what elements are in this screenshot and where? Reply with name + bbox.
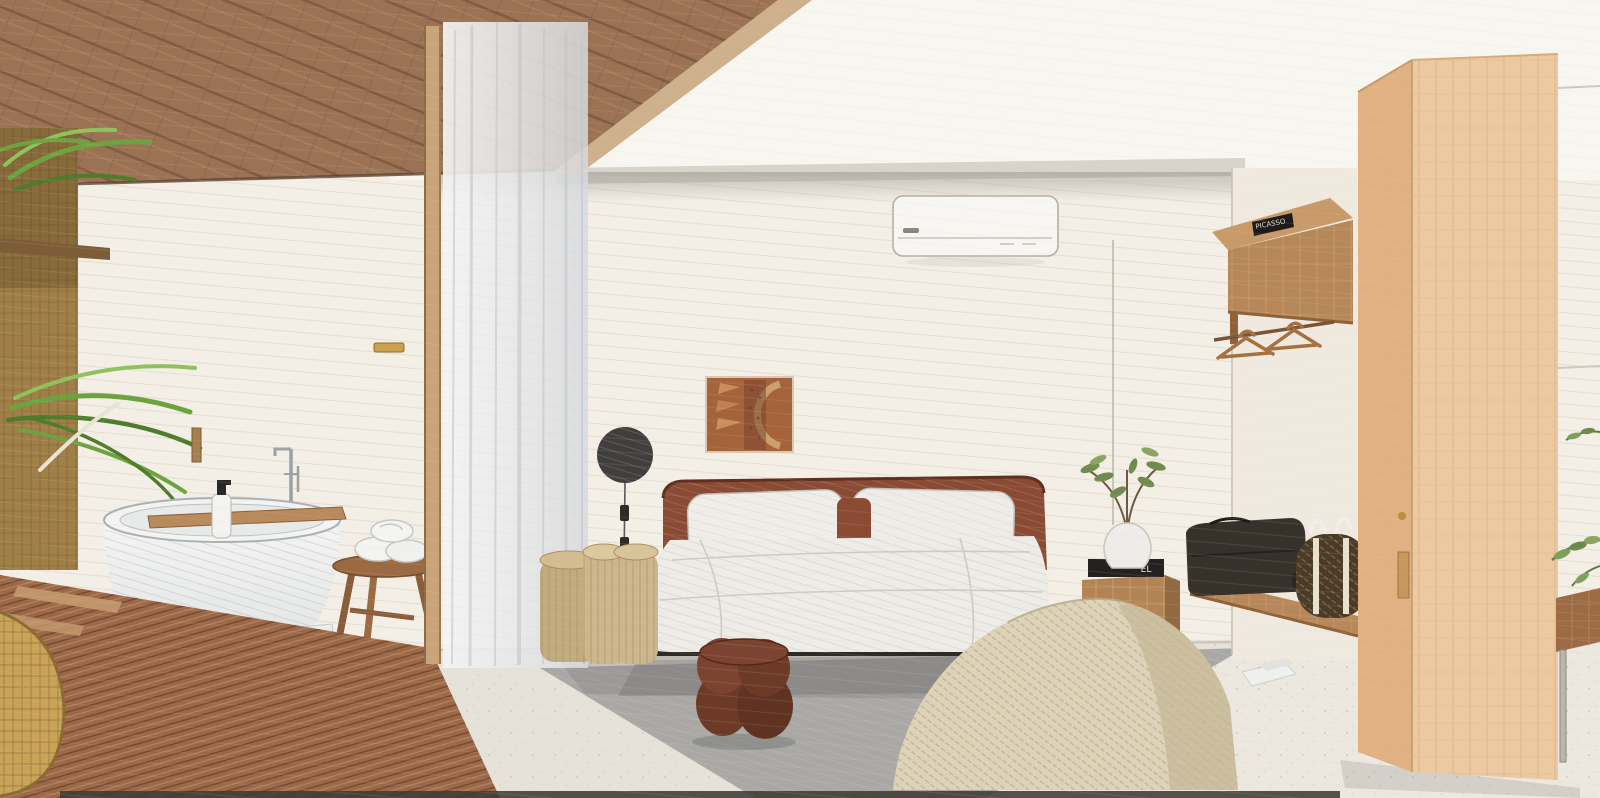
paper-texture-overlay — [0, 0, 1600, 798]
bedroom-suite-rendering: EL — [0, 0, 1600, 798]
